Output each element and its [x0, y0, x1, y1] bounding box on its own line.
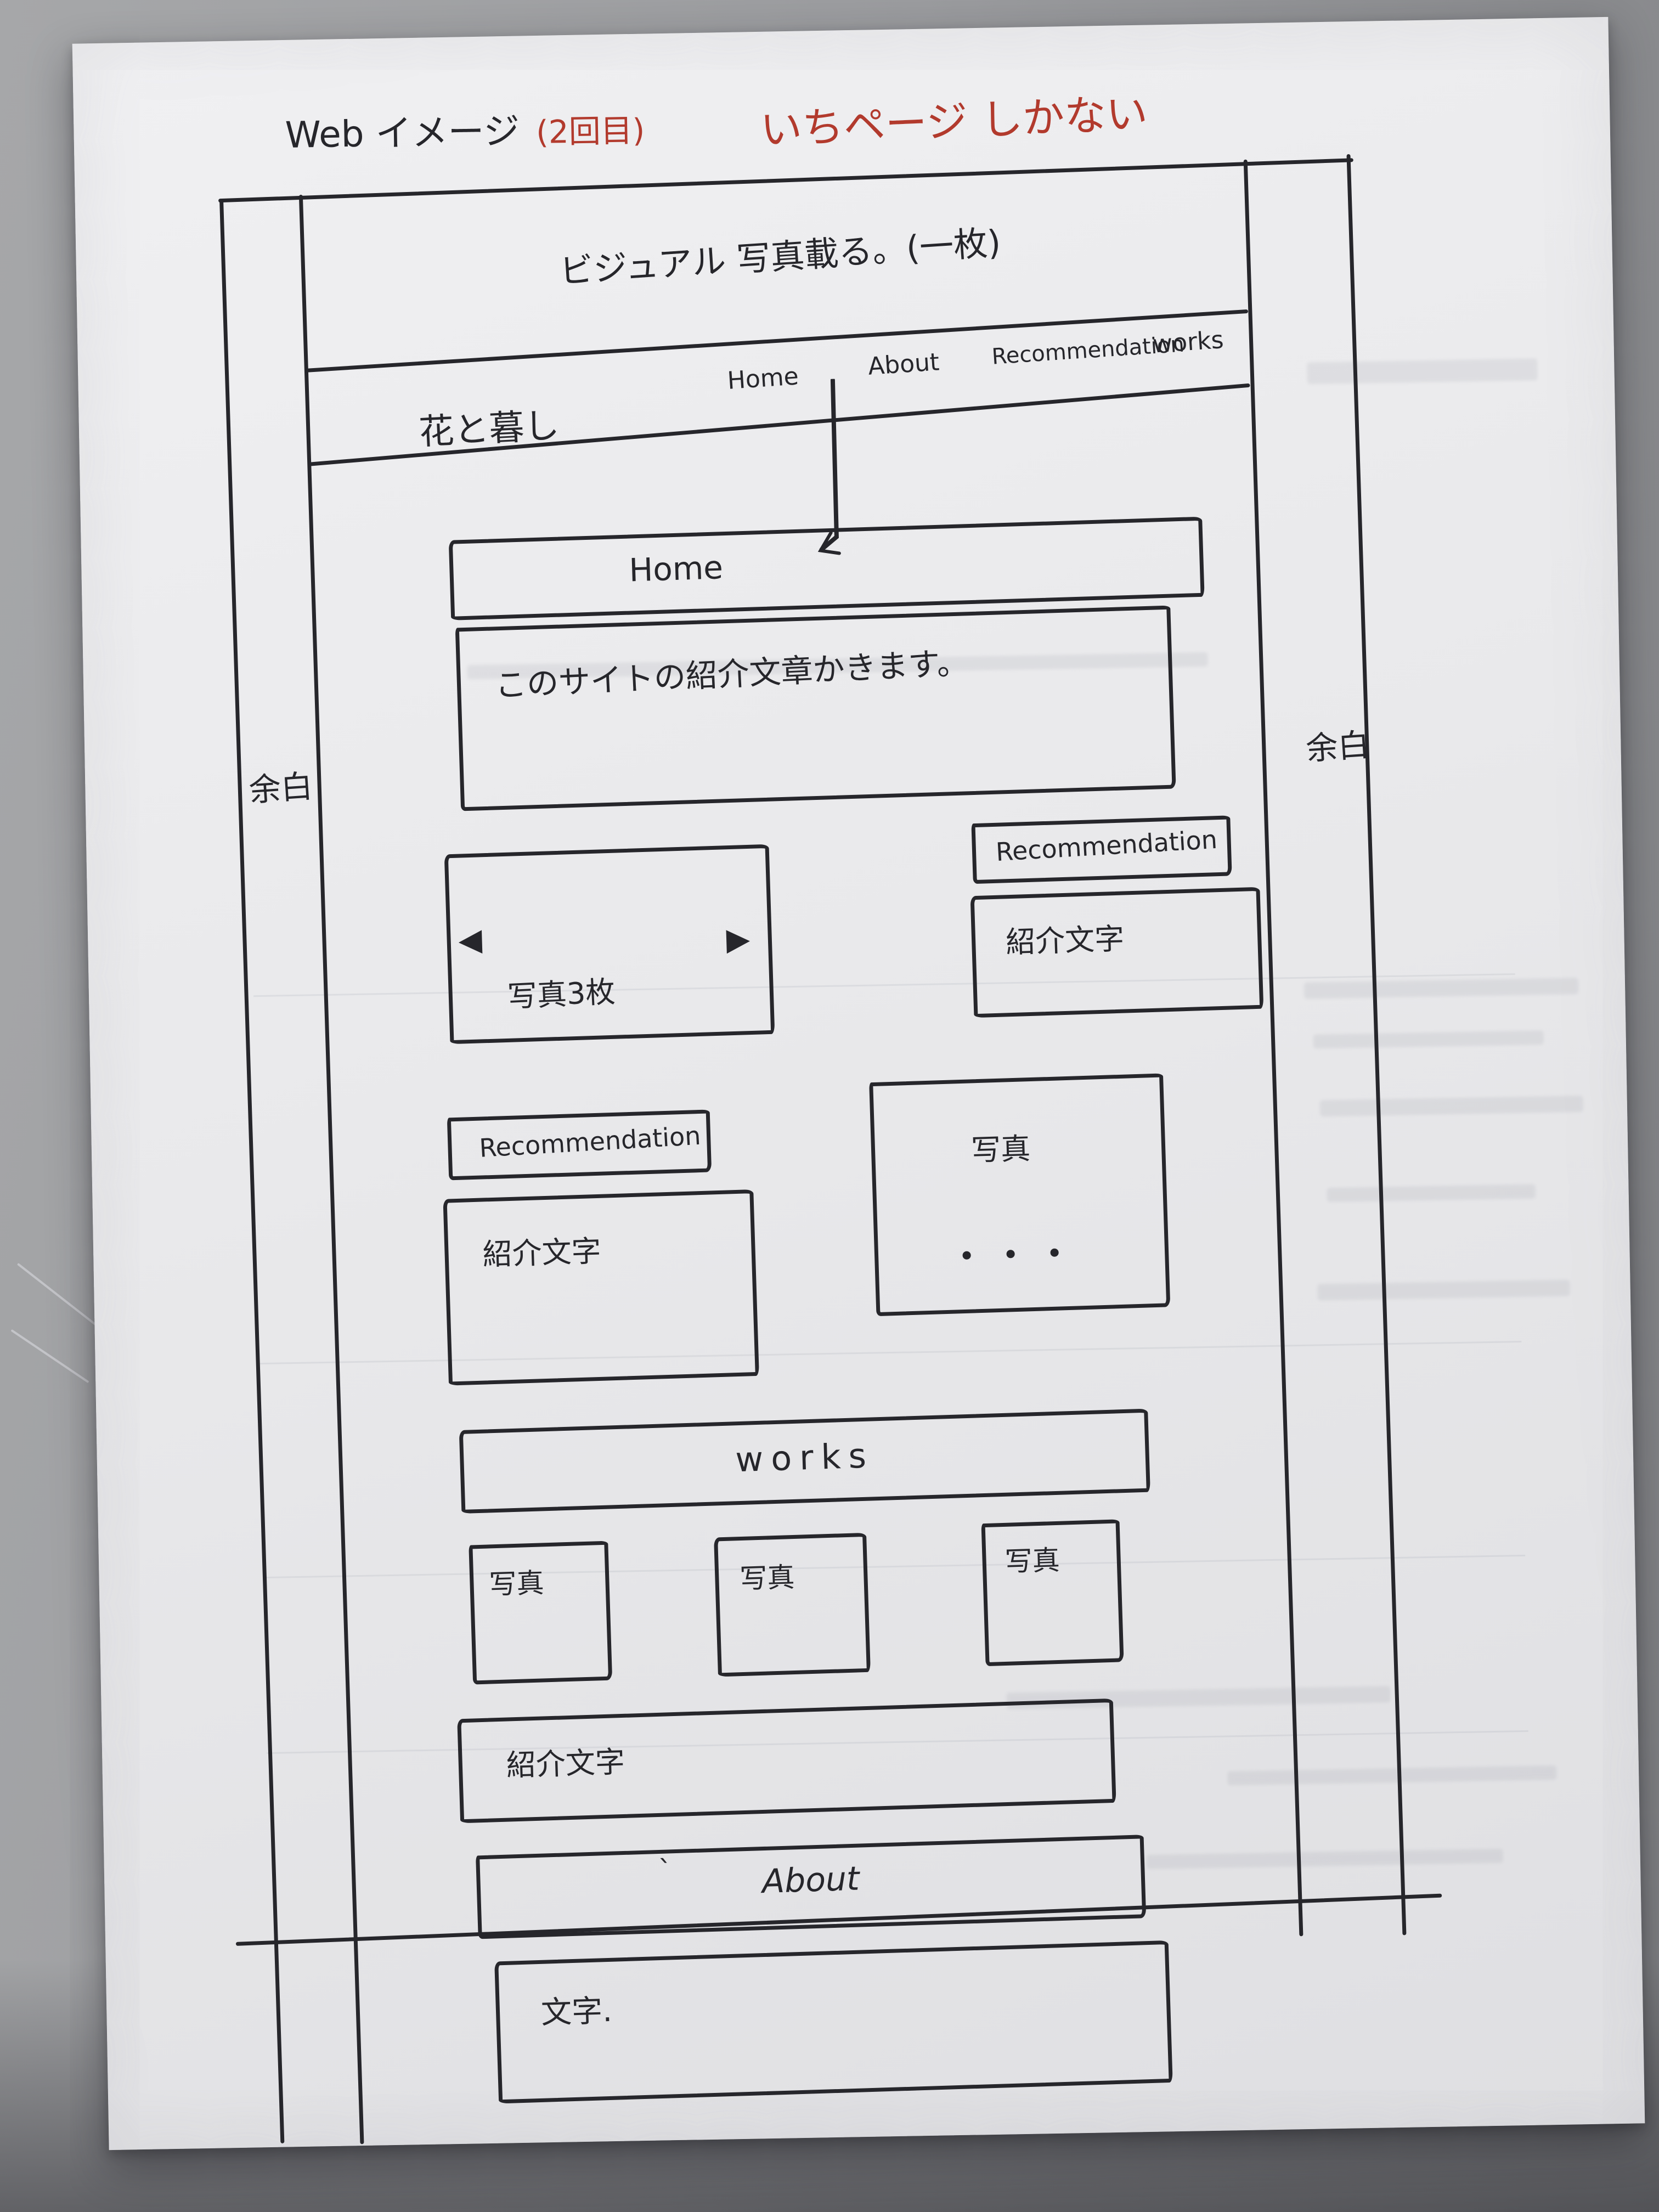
carousel-next-icon: ▶: [726, 921, 751, 957]
wireframe-frame: 余白 余白 ビジュアル 写真載る。(一枚) 花と暮し Home About Re…: [219, 161, 1413, 2148]
photo-label: 写真: [970, 1124, 1031, 1169]
works-body-note: 紹介文字: [506, 1737, 625, 1785]
recommendation-left-body-box: 紹介文字: [443, 1189, 759, 1386]
sketch-title: Web イメージ (2回目) いちページ しかない: [285, 84, 1148, 160]
recommendation-left-heading: Recommendation: [478, 1121, 702, 1163]
recommendation-left-heading-box: Recommendation: [447, 1109, 712, 1180]
works-heading: works: [464, 1427, 1146, 1488]
right-margin-label: 余白: [1305, 719, 1371, 769]
nav-item-home: Home: [726, 362, 799, 394]
recommendation-left-body-note: 紹介文字: [482, 1227, 601, 1274]
about-heading: About: [480, 1850, 1142, 1910]
about-body-note: 文字.: [540, 1986, 613, 2033]
photo-label: 写真: [739, 1555, 795, 1596]
recommendation-right-body-note: 紹介文字: [1005, 915, 1125, 962]
works-body-box: 紹介文字: [457, 1699, 1116, 1823]
about-body-box: 文字.: [494, 1940, 1173, 2103]
home-heading-box: Home: [449, 517, 1205, 620]
about-heading-box: ` About: [476, 1835, 1146, 1939]
left-margin-line: [299, 195, 364, 2144]
works-heading-box: works: [459, 1409, 1150, 1514]
nav-item-works: works: [1152, 326, 1225, 358]
carousel-prev-icon: ◀: [458, 922, 483, 958]
title-page-note: いちページ しかない: [759, 79, 1149, 156]
photo-of-desk: Web イメージ (2回目) いちページ しかない 余白 余白 ビジュアル 写真…: [0, 0, 1659, 2212]
site-intro-box: このサイトの紹介文章かきます。: [455, 606, 1176, 811]
frame-left-line: [219, 199, 284, 2143]
desk-scratch: [10, 1329, 89, 1383]
recommendation-right-heading-box: Recommendation: [971, 815, 1232, 884]
works-photo-box: 写真: [714, 1533, 871, 1677]
site-intro-note: このサイトの紹介文章かきます。: [494, 637, 969, 706]
left-margin-label: 余白: [247, 760, 314, 811]
title-text: Web イメージ: [285, 102, 520, 159]
carousel-label: 写真3枚: [506, 967, 616, 1015]
title-revision-note: (2回目): [535, 105, 645, 153]
recommendation-right-heading: Recommendation: [995, 825, 1218, 867]
home-heading: Home: [629, 549, 724, 589]
more-dots: ・・・: [949, 1225, 1082, 1278]
hero-visual-note: ビジュアル 写真載る。(一枚): [558, 215, 1002, 293]
recommendation-right-body-box: 紹介文字: [970, 887, 1264, 1018]
frame-top-line: [218, 158, 1353, 202]
right-margin-line: [1244, 160, 1304, 1937]
works-photo-box: 写真: [981, 1519, 1124, 1666]
paper-sheet: Web イメージ (2回目) いちページ しかない 余白 余白 ビジュアル 写真…: [72, 17, 1645, 2150]
photo-label: 写真: [488, 1561, 544, 1602]
photo-carousel-box: ◀ ▶ 写真3枚: [444, 844, 775, 1044]
photo-more-box: 写真 ・・・: [869, 1073, 1170, 1316]
photo-label: 写真: [1004, 1538, 1060, 1579]
nav-item-about: About: [867, 348, 940, 381]
desk-scratch: [17, 1263, 100, 1329]
works-photo-box: 写真: [469, 1541, 612, 1685]
